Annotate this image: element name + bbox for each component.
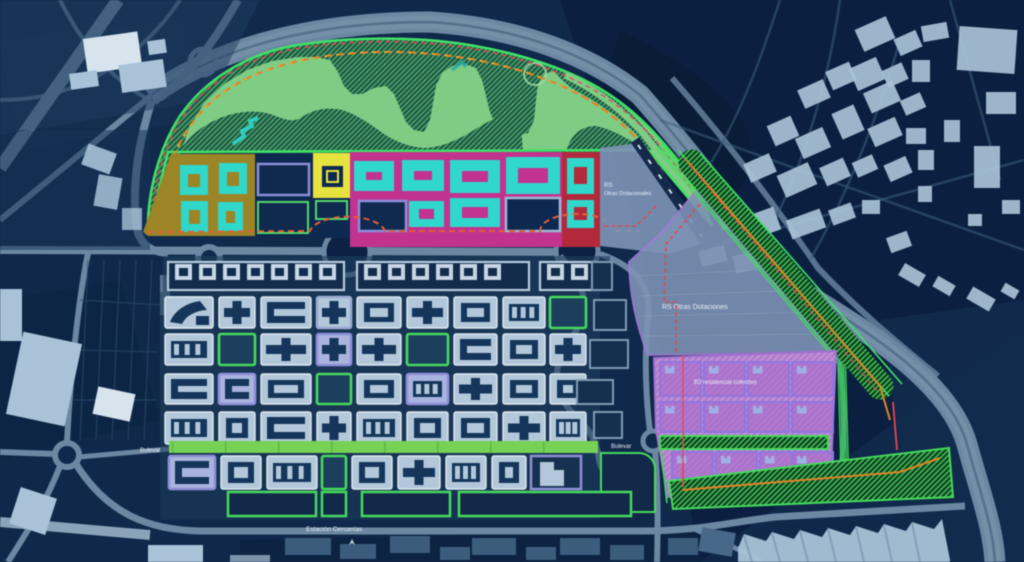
svg-text:Bulevar: Bulevar: [611, 444, 631, 450]
svg-text:B3 residencial colectivo: B3 residencial colectivo: [694, 380, 757, 386]
svg-text:Estación Cercanías: Estación Cercanías: [306, 526, 363, 533]
svg-text:RS: RS: [604, 183, 612, 189]
svg-text:Bulevar: Bulevar: [140, 448, 160, 454]
svg-text:Otras Dotacionales: Otras Dotacionales: [604, 191, 652, 197]
svg-text:RS Otras Dotaciones: RS Otras Dotaciones: [662, 304, 728, 311]
